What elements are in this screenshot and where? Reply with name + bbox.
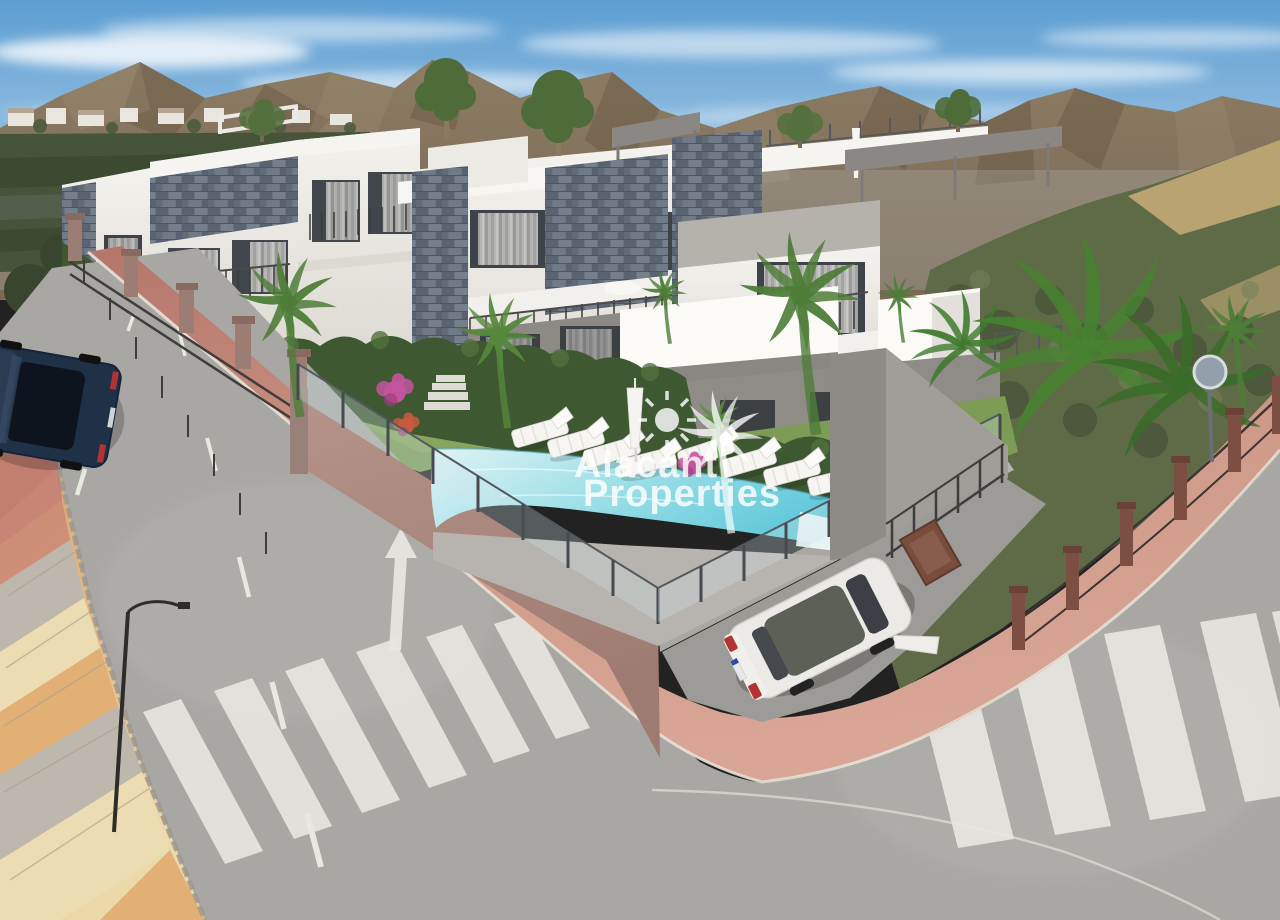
balcony-sofa [604,281,640,295]
property-render-image: Alacant Properties [0,0,1280,920]
sun-icon [638,391,696,449]
render-canvas: Alacant Properties [0,0,1280,920]
watermark-line2: Properties [583,473,781,515]
